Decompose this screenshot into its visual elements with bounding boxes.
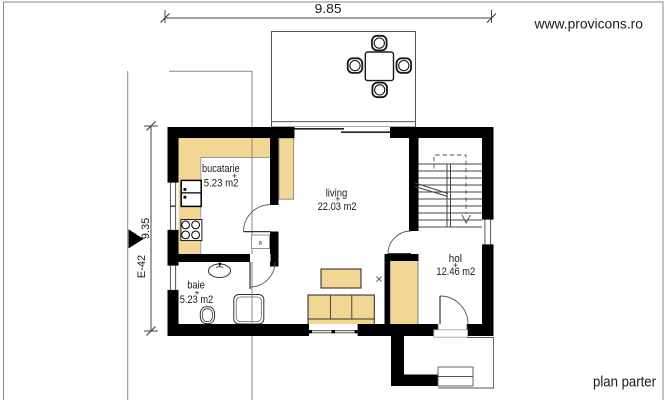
svg-text:12.46 m2: 12.46 m2 [436, 266, 475, 278]
svg-text:9.85: 9.85 [315, 2, 342, 16]
svg-text:5.23 m2: 5.23 m2 [204, 178, 239, 190]
svg-text:bucatarie: bucatarie [202, 163, 240, 175]
svg-text:9.35: 9.35 [140, 218, 152, 239]
svg-text:baie: baie [187, 279, 205, 291]
svg-text:plan parter: plan parter [593, 374, 656, 391]
svg-text:www.provicons.ro: www.provicons.ro [533, 17, 643, 32]
svg-text:22.03 m2: 22.03 m2 [318, 201, 357, 213]
svg-text:5.23 m2: 5.23 m2 [180, 294, 213, 306]
svg-text:living: living [326, 187, 348, 199]
svg-text:E-42: E-42 [136, 255, 148, 278]
